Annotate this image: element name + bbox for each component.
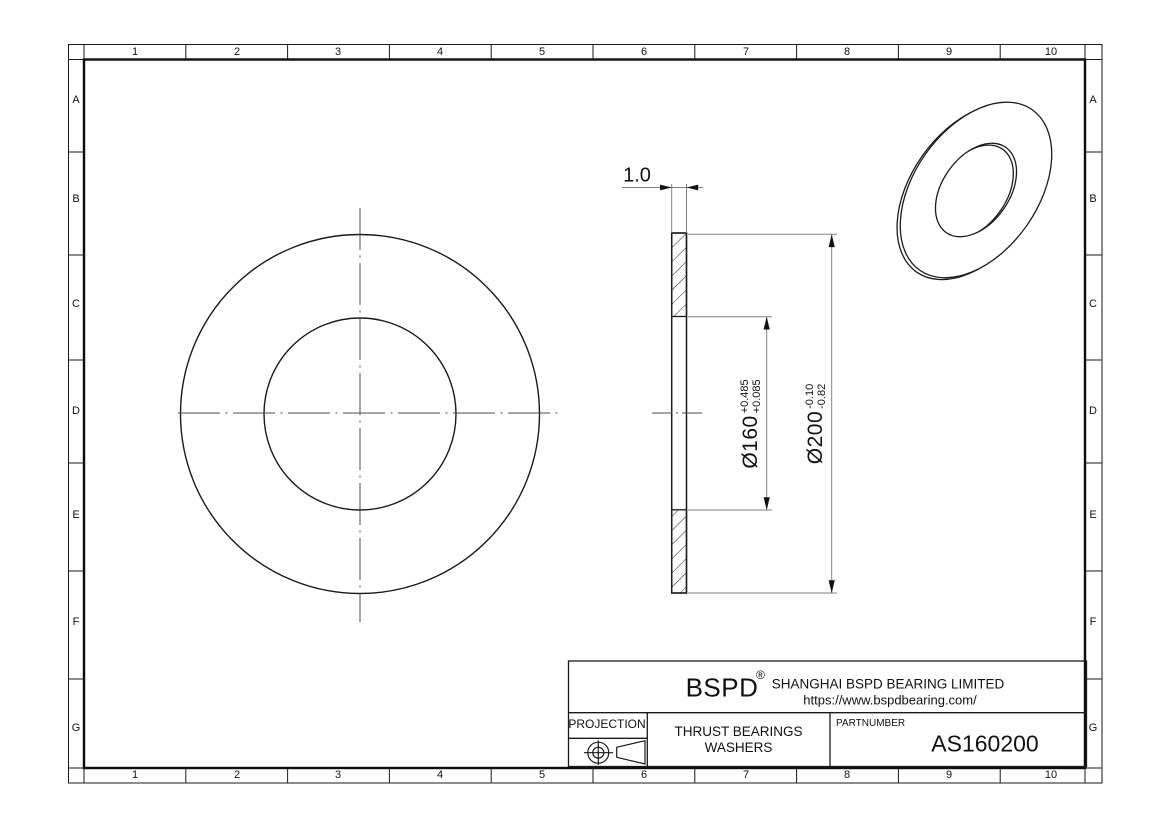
grid-col-label-top: 6 — [641, 46, 647, 58]
outer-tol-lower: -0.82 — [817, 384, 829, 409]
company-name: SHANGHAI BSPD BEARING LIMITED — [772, 677, 1005, 692]
grid-col-label-top: 3 — [335, 46, 341, 58]
grid-row-label-left: E — [72, 509, 79, 521]
grid-row-label-right: E — [1089, 509, 1096, 521]
grid-row-label-left: B — [72, 193, 79, 205]
outer-tol-upper: -0.10 — [805, 384, 817, 409]
grid-col-label-top: 8 — [844, 46, 850, 58]
grid-row-label-right: B — [1089, 193, 1096, 205]
grid-col-label-top: 2 — [234, 46, 240, 58]
grid-col-label-bottom: 6 — [641, 769, 647, 781]
drawing-sheet: 1 2 3 4 5 6 7 8 9 10 1 2 3 4 5 6 7 8 9 1… — [0, 0, 1170, 827]
thickness-dimension-text: 1.0 — [623, 165, 651, 188]
grid-col-label-bottom: 10 — [1045, 769, 1057, 781]
grid-row-label-left: F — [73, 616, 80, 628]
drawing-title-line1: THRUST BEARINGS — [648, 724, 829, 740]
section-view — [652, 233, 703, 593]
outer-dimension-text: Ø200 -0.10 -0.82 — [804, 378, 830, 470]
grid-row-label-right: D — [1089, 405, 1097, 417]
grid-row-label-left: D — [72, 405, 80, 417]
outer-tolerance: -0.10 -0.82 — [805, 384, 828, 409]
grid-row-label-left: G — [72, 722, 81, 734]
projection-label: PROJECTION — [568, 717, 645, 731]
grid-row-label-right: G — [1089, 722, 1098, 734]
isometric-view — [866, 74, 1083, 307]
grid-col-label-bottom: 5 — [539, 769, 545, 781]
grid-col-label-bottom: 8 — [844, 769, 850, 781]
bore-tol-upper: +0.485 — [740, 379, 752, 413]
front-view — [178, 208, 562, 622]
grid-col-label-top: 5 — [539, 46, 545, 58]
partnumber-label: PARTNUMBER — [836, 718, 905, 729]
company-logo: BSPD — [686, 673, 759, 704]
bore-tolerance: +0.485 +0.085 — [740, 379, 763, 413]
grid-col-label-top: 10 — [1045, 46, 1057, 58]
bore-tol-lower: +0.085 — [752, 379, 764, 413]
grid-row-label-left: A — [72, 94, 79, 106]
company-website: https://www.bspdbearing.com/ — [803, 693, 976, 708]
grid-col-label-bottom: 7 — [743, 769, 749, 781]
grid-col-label-top: 9 — [946, 46, 952, 58]
section-hatch-top — [672, 233, 687, 317]
grid-row-label-right: A — [1089, 94, 1096, 106]
drawing-title: THRUST BEARINGS WASHERS — [648, 724, 829, 755]
grid-row-label-left: C — [72, 298, 80, 310]
drawing-linework — [0, 0, 1170, 827]
front-view-centerlines — [178, 208, 562, 622]
grid-col-label-top: 4 — [437, 46, 443, 58]
grid-col-label-bottom: 3 — [335, 769, 341, 781]
grid-row-label-right: C — [1089, 298, 1097, 310]
section-hatch-bottom — [672, 510, 687, 593]
grid-col-label-top: 1 — [132, 46, 138, 58]
grid-col-label-bottom: 4 — [437, 769, 443, 781]
registered-trademark-icon: ® — [756, 668, 765, 682]
drawing-title-line2: WASHERS — [648, 740, 829, 756]
grid-col-label-bottom: 9 — [946, 769, 952, 781]
bore-diameter-value: Ø160 — [739, 415, 762, 468]
outer-diameter-value: Ø200 — [804, 411, 827, 464]
grid-col-label-bottom: 1 — [132, 769, 138, 781]
grid-row-label-right: F — [1090, 616, 1097, 628]
bore-dimension-text: Ø160 +0.485 +0.085 — [739, 378, 765, 470]
dimension-thickness — [622, 184, 703, 233]
projection-symbol-icon — [584, 741, 645, 766]
grid-col-label-top: 7 — [743, 46, 749, 58]
grid-col-label-bottom: 2 — [234, 769, 240, 781]
partnumber-value: AS160200 — [931, 731, 1038, 758]
